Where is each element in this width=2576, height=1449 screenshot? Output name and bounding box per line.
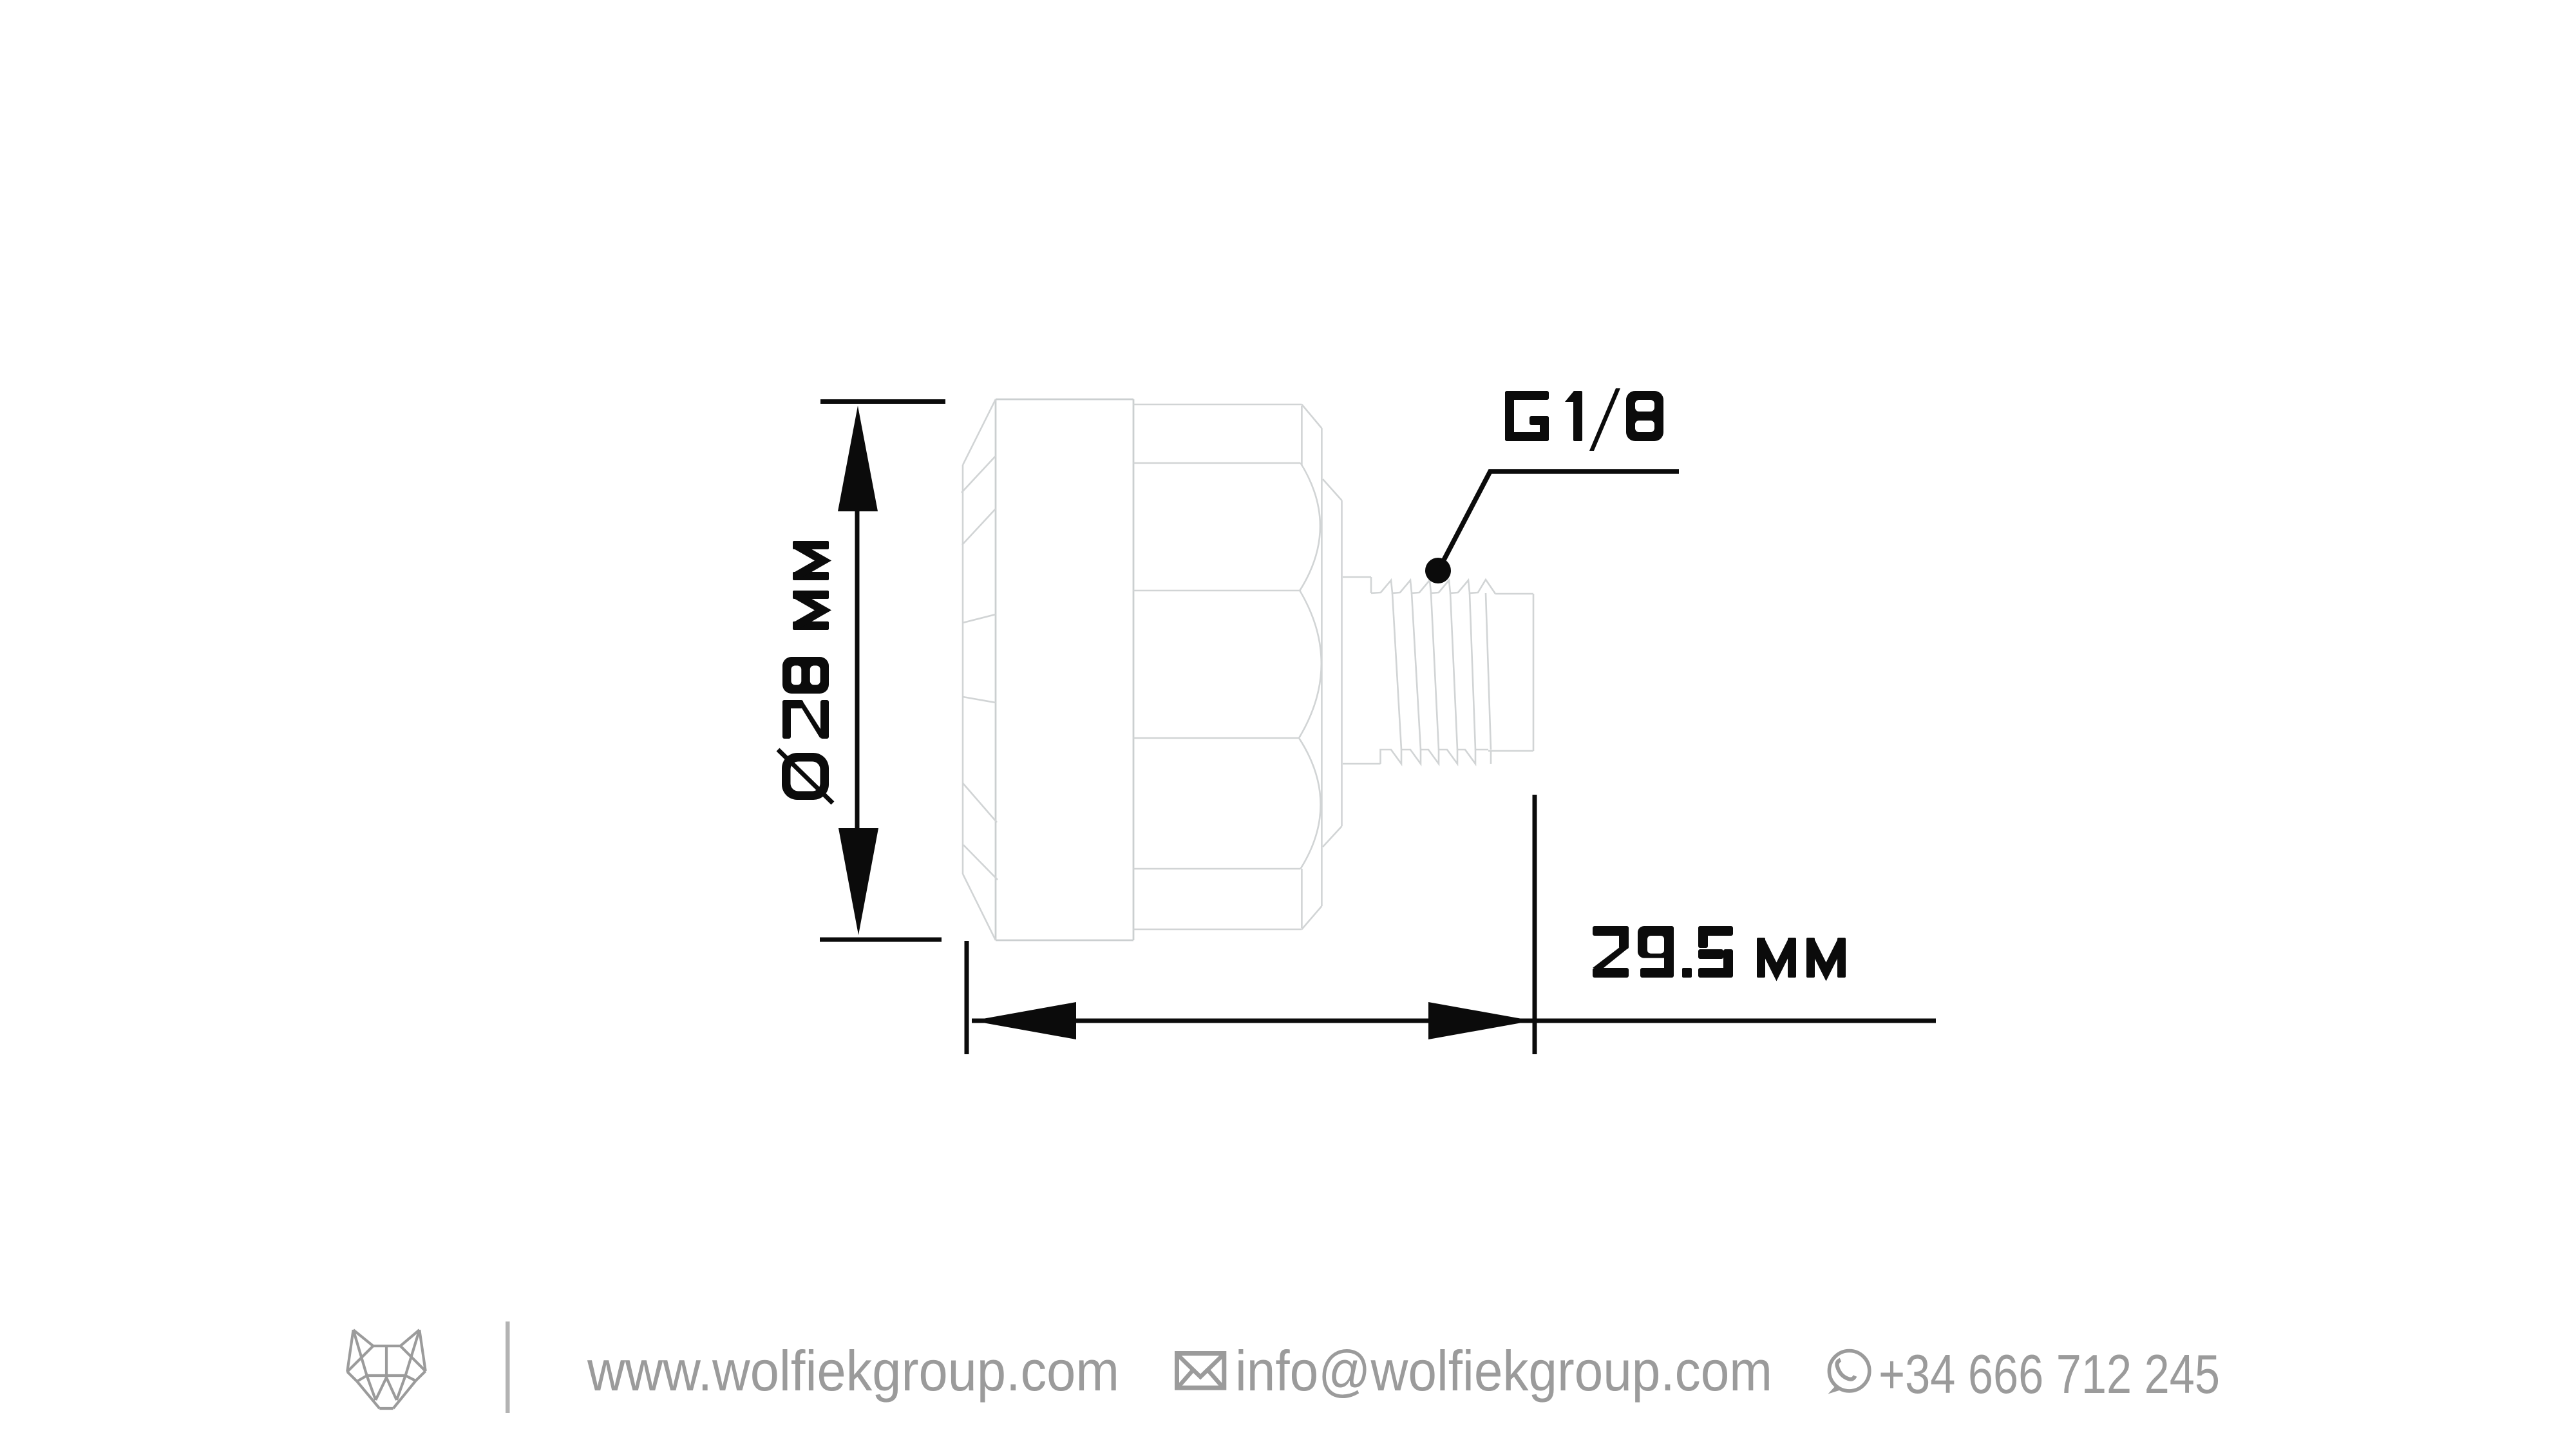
svg-text:info@wolfiekgroup.com: info@wolfiekgroup.com: [1235, 1339, 1772, 1403]
svg-text:+34 666 712 245: +34 666 712 245: [1879, 1344, 2220, 1405]
svg-text:www.wolfiekgroup.com: www.wolfiekgroup.com: [587, 1339, 1119, 1403]
